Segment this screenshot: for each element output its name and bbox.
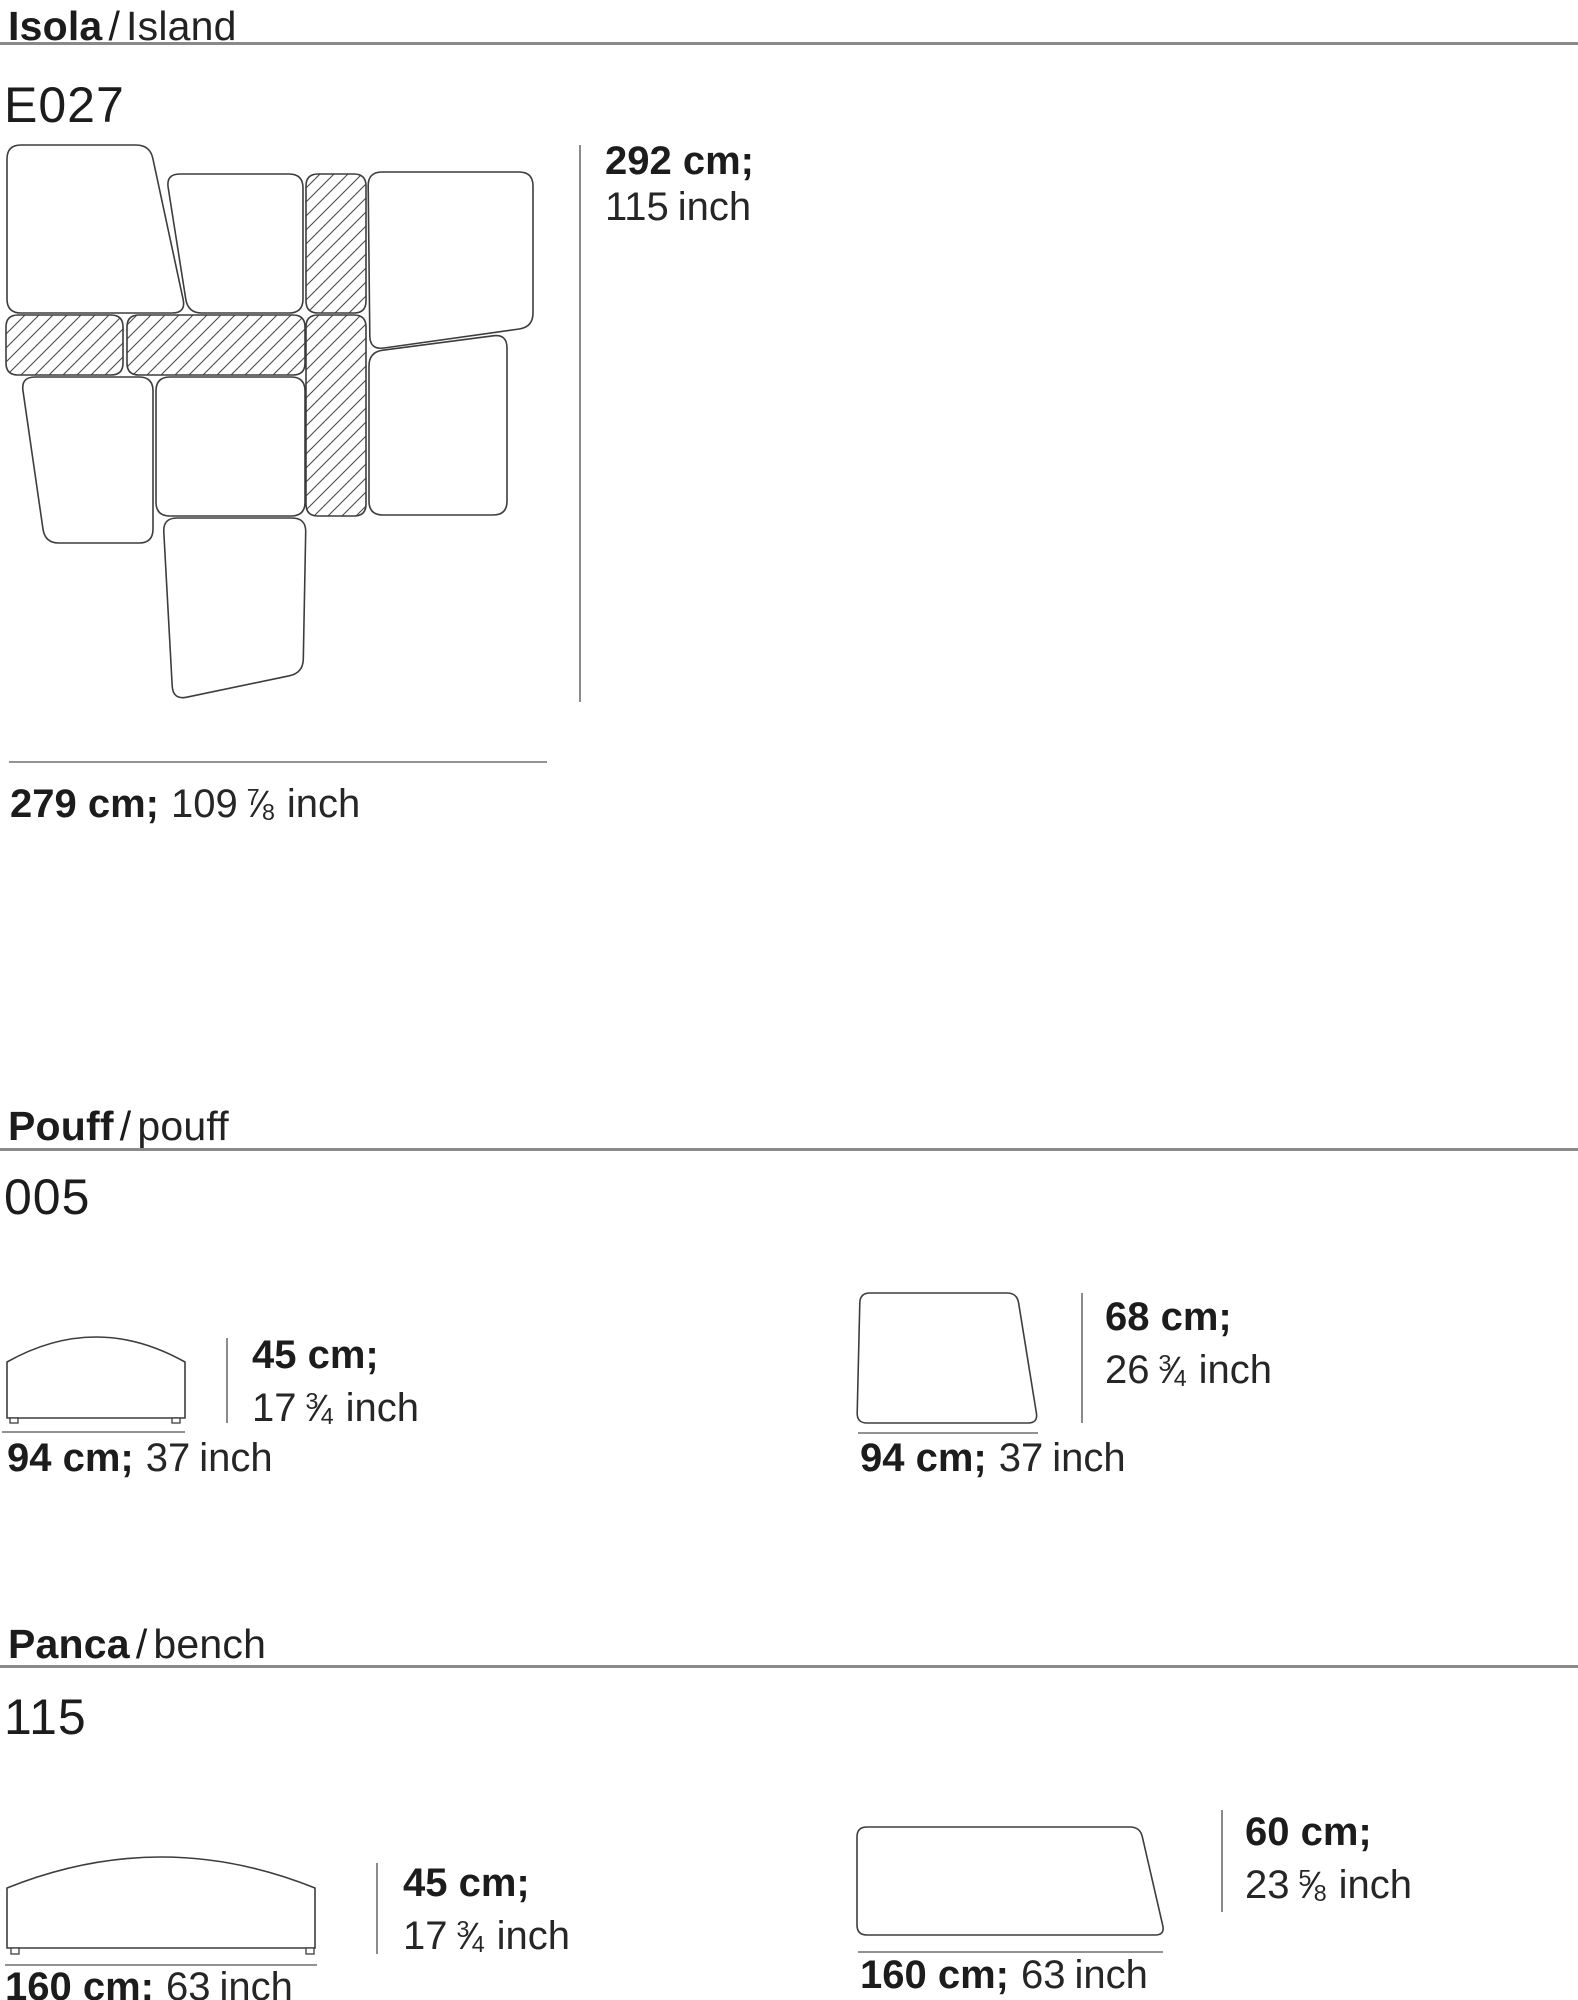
section-rule xyxy=(0,1665,1578,1668)
fraction: 5⁄8 xyxy=(1299,1863,1327,1907)
section-rule xyxy=(0,1148,1578,1151)
inch-value: 63⁄inch xyxy=(1021,1953,1148,1997)
bench-side-height-label: 60 cm; 235⁄8inch xyxy=(1245,1809,1412,1916)
cm-value: 60 cm; xyxy=(1245,1809,1412,1855)
section-title-separator: / xyxy=(114,1103,138,1149)
cm-value: 45 cm; xyxy=(403,1860,570,1906)
cm-value: 160 cm; xyxy=(860,1953,1009,1997)
seat-module xyxy=(168,174,303,313)
seat-module xyxy=(369,336,507,515)
section-title-pouff: Pouff/pouff xyxy=(8,1104,229,1148)
bench-front-height-label: 45 cm; 173⁄4inch xyxy=(403,1860,570,1967)
seat-module xyxy=(7,1337,185,1418)
fraction: 7⁄8 xyxy=(247,782,275,826)
island-height-label: 292 cm; 115⁄inch xyxy=(605,138,754,230)
bench-drawings xyxy=(0,1790,1280,1975)
fraction: 3⁄4 xyxy=(457,1914,485,1958)
cm-value: 292 cm; xyxy=(605,138,754,184)
cm-value: 68 cm; xyxy=(1105,1294,1272,1340)
island-plan-drawing xyxy=(0,130,620,790)
section-rule xyxy=(0,42,1578,45)
backrest-module-hatched xyxy=(306,315,366,516)
product-code: 005 xyxy=(4,1172,90,1222)
inch-value: 173⁄4inch xyxy=(252,1378,419,1439)
pouff-front-height-label: 45 cm; 173⁄4inch xyxy=(252,1332,419,1439)
section-title-primary: Panca xyxy=(8,1621,130,1667)
product-code: 115 xyxy=(4,1692,87,1742)
inch-value: 263⁄4inch xyxy=(1105,1340,1272,1401)
seat-module xyxy=(368,172,533,348)
fraction: 3⁄4 xyxy=(1159,1348,1187,1392)
section-title-bench: Panca/bench xyxy=(8,1622,266,1666)
furniture-foot xyxy=(172,1418,180,1423)
inch-value: 37⁄inch xyxy=(999,1436,1126,1480)
catalog-page: Isola/Island E027 292 cm; 115⁄inch 279 c… xyxy=(0,0,1578,2000)
furniture-foot xyxy=(11,1948,19,1954)
seat-module xyxy=(23,377,153,543)
cm-value: 94 cm; xyxy=(860,1436,987,1480)
seat-module xyxy=(7,145,184,313)
inch-value: 235⁄8inch xyxy=(1245,1855,1412,1916)
inch-value: 1097⁄8inch xyxy=(171,782,360,826)
backrest-module-hatched xyxy=(6,315,123,375)
cm-value: 160 cm; xyxy=(5,1965,154,2000)
inch-value: 37⁄inch xyxy=(146,1436,273,1480)
seat-module xyxy=(164,518,306,698)
seat-module xyxy=(7,1857,315,1948)
bench-front-width-label: 160 cm;63⁄inch xyxy=(5,1964,293,2000)
cm-value: 94 cm; xyxy=(7,1436,134,1480)
section-title-secondary: pouff xyxy=(137,1103,228,1149)
pouff-side-width-label: 94 cm;37⁄inch xyxy=(860,1435,1126,1481)
inch-value: 115⁄inch xyxy=(605,184,754,230)
section-title-separator: / xyxy=(130,1621,154,1667)
furniture-foot xyxy=(10,1418,18,1423)
bench-side-width-label: 160 cm;63⁄inch xyxy=(860,1952,1148,1998)
backrest-module-hatched xyxy=(127,315,305,375)
inch-value: 63⁄inch xyxy=(166,1965,293,2000)
section-title-secondary: bench xyxy=(153,1621,266,1667)
section-title-primary: Pouff xyxy=(8,1103,114,1149)
seat-module xyxy=(857,1293,1036,1423)
island-width-label: 279 cm;1097⁄8inch xyxy=(10,774,360,835)
cm-value: 45 cm; xyxy=(252,1332,419,1378)
cm-value: 279 cm; xyxy=(10,782,159,826)
pouff-front-width-label: 94 cm;37⁄inch xyxy=(7,1435,273,1481)
backrest-module-hatched xyxy=(306,174,366,313)
pouff-side-height-label: 68 cm; 263⁄4inch xyxy=(1105,1294,1272,1401)
inch-value: 173⁄4inch xyxy=(403,1906,570,1967)
seat-module xyxy=(156,377,305,516)
seat-module xyxy=(857,1827,1163,1935)
product-code: E027 xyxy=(4,80,125,130)
fraction: 3⁄4 xyxy=(306,1386,334,1430)
furniture-foot xyxy=(306,1948,314,1954)
pouff-drawings xyxy=(0,1280,1200,1445)
